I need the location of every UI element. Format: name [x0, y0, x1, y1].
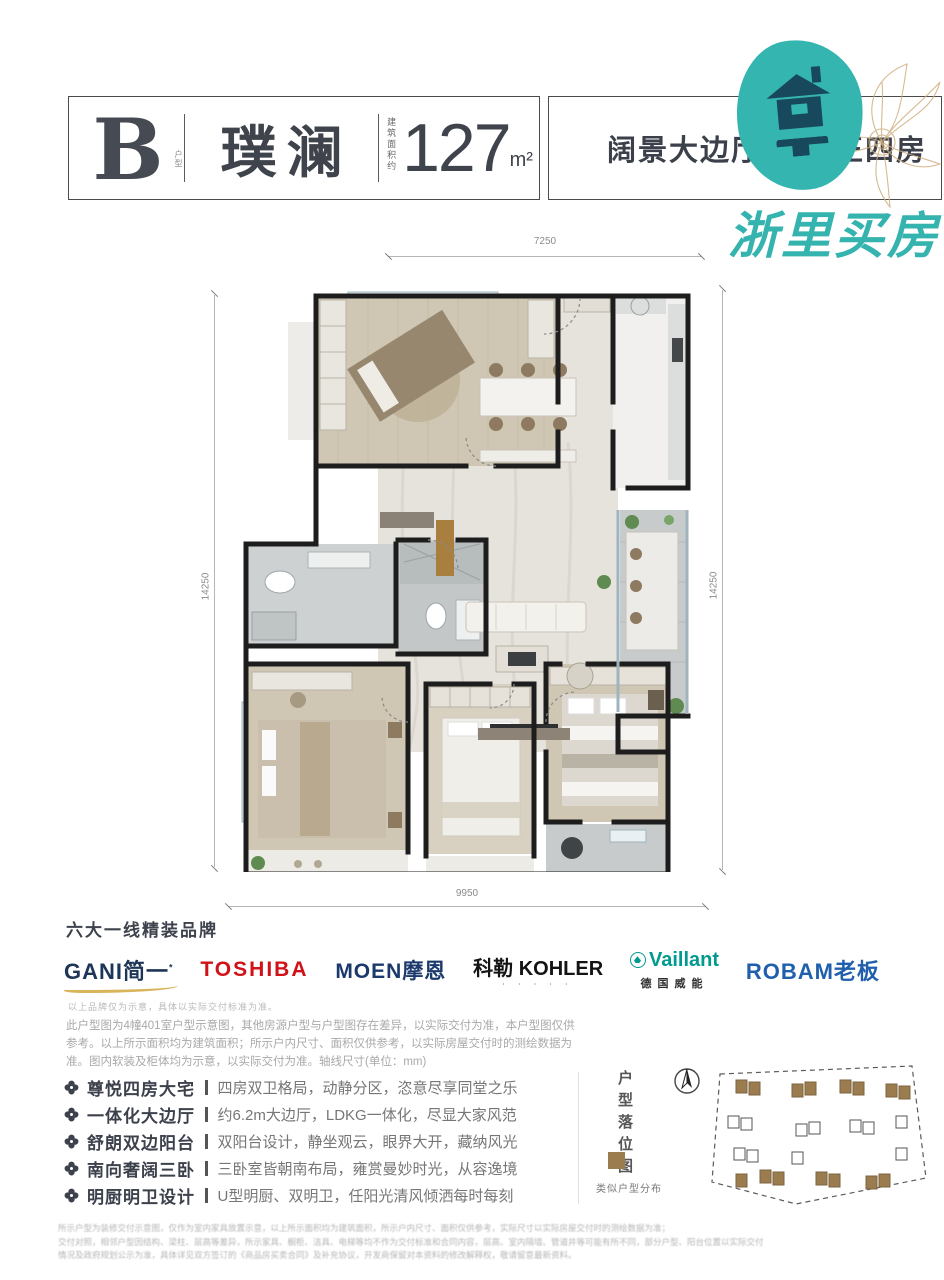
feature-desc: 三卧室皆朝南布局，雍赏曼妙时光，从容逸境: [218, 1158, 518, 1179]
feature-desc: U型明厨、双明卫，任阳光清风倾洒每时每刻: [218, 1185, 514, 1206]
feature-desc: 四房双卫格局，动静分区，恣意尽享同堂之乐: [218, 1077, 518, 1098]
feature-separator: [205, 1107, 208, 1122]
compass-icon: [672, 1066, 702, 1096]
brand-robam: ROBAM老板: [746, 954, 880, 986]
fineprint-line: 情况及政府规划公示为准，具体详见双方签订的《商品房买卖合同》及补充协议，开发商保…: [58, 1249, 910, 1263]
poster-page: B 户型 璞澜 建筑面积约 127 m² 阔景大边厅 改善正四房: [0, 0, 944, 1280]
brand-vaillant: Vaillant 德国威能: [630, 949, 719, 992]
feature-separator: [205, 1161, 208, 1176]
house-icon: [765, 71, 834, 134]
brand-logos-row: GANI简一* TOSHIBA MOEN摩恩 科勒 KOHLER · · · ·…: [64, 948, 880, 992]
floorplan-svg: [228, 282, 706, 872]
feature-title: 尊悦四房大宅: [87, 1075, 195, 1100]
area-prefix-label: 建筑面积约: [385, 117, 398, 179]
feature-row: 南向奢阔三卧 三卧室皆朝南布局，雍赏曼妙时光，从容逸境: [64, 1155, 560, 1182]
vaillant-chinese-name: 德国威能: [630, 975, 719, 991]
unit-letter-sublabel: 户型: [173, 150, 184, 168]
floorplan: [228, 282, 706, 872]
dimension-right-label: 14250: [708, 572, 719, 600]
siteplan-map: [700, 1060, 932, 1212]
brand-moen: MOEN摩恩: [335, 955, 446, 985]
feature-row: 一体化大边厅 约6.2m大边厅，LDKG一体化，尽显大家风范: [64, 1101, 560, 1128]
brand-note: 以上品牌仅为示意，具体以实际交付标准为准。: [68, 1000, 278, 1013]
logo-glyph: [776, 136, 829, 158]
fineprint-line: 所示户型为装修交付示意图，仅作为室内家具放置示意，以上所示面积均为建筑面积，所示…: [58, 1222, 910, 1236]
feature-bullet-icon: [64, 1134, 79, 1149]
feature-desc: 双阳台设计，静坐观云，眼界大开，藏纳风光: [218, 1131, 518, 1152]
fineprint: 所示户型为装修交付示意图，仅作为室内家具放置示意，以上所示面积均为建筑面积，所示…: [58, 1222, 910, 1263]
feature-bullet-icon: [64, 1107, 79, 1122]
unit-letter: B: [69, 104, 187, 192]
fineprint-line: 交付对照，相邻户型因结构、梁柱、层高等差异，所示家具、橱柜、洁具、电梯等均不作为…: [58, 1236, 910, 1250]
legend-label: 类似户型分布: [596, 1180, 662, 1195]
feature-separator: [205, 1188, 208, 1203]
legend-swatch: [608, 1152, 625, 1169]
brand-toshiba: TOSHIBA: [200, 958, 308, 982]
dimension-right: 14250: [712, 290, 736, 870]
unit-header-box: B 户型 璞澜 建筑面积约 127 m²: [68, 96, 540, 200]
feature-separator: [205, 1134, 208, 1149]
feature-bullet-icon: [64, 1080, 79, 1095]
feature-title: 南向奢阔三卧: [87, 1156, 195, 1181]
feature-title: 舒朗双边阳台: [87, 1129, 195, 1154]
brand-gani: GANI简一*: [64, 954, 174, 986]
feature-row: 舒朗双边阳台 双阳台设计，静坐观云，眼界大开，藏纳风光: [64, 1128, 560, 1155]
feature-list: 尊悦四房大宅 四房双卫格局，动静分区，恣意尽享同堂之乐 一体化大边厅 约6.2m…: [64, 1074, 560, 1209]
feature-title: 明厨明卫设计: [87, 1183, 195, 1208]
plan-disclaimer: 此户型图为4幢401室户型示意图，其他房源户型与户型图存在差异，以实际交付为准，…: [66, 1018, 578, 1071]
vertical-divider: [578, 1072, 579, 1204]
dimension-bottom: 9950: [228, 888, 706, 912]
feature-title: 一体化大边厅: [87, 1102, 195, 1127]
feature-row: 明厨明卫设计 U型明厨、双明卫，任阳光清风倾洒每时每刻: [64, 1182, 560, 1209]
feature-separator: [205, 1080, 208, 1095]
feature-row: 尊悦四房大宅 四房双卫格局，动静分区，恣意尽享同堂之乐: [64, 1074, 560, 1101]
kohler-subtext: · · · · ·: [473, 982, 603, 988]
unit-name: 璞澜: [185, 108, 378, 189]
dimension-bottom-label: 9950: [456, 888, 478, 899]
feature-bullet-icon: [64, 1161, 79, 1176]
feature-bullet-icon: [64, 1188, 79, 1203]
dimension-left: 14250: [200, 295, 224, 867]
dimension-left-label: 14250: [200, 573, 211, 601]
brand-kohler: 科勒 KOHLER · · · · ·: [473, 952, 603, 988]
area-value: 127: [402, 114, 509, 182]
area-block: 建筑面积约 127 m²: [379, 114, 539, 182]
feature-desc: 约6.2m大边厅，LDKG一体化，尽显大家风范: [218, 1104, 517, 1125]
area-unit: m²: [510, 149, 533, 172]
watermark-text: 浙里买房: [648, 196, 940, 268]
dimension-top-label: 7250: [534, 236, 556, 247]
brands-section-title: 六大一线精装品牌: [66, 916, 218, 941]
gani-gold-swoosh: [64, 985, 178, 993]
vaillant-crest-icon: [630, 952, 646, 968]
